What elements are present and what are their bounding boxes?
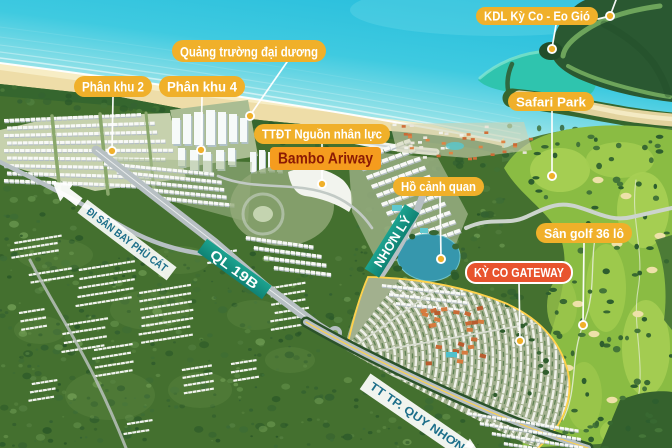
svg-text:Phân khu 2: Phân khu 2 <box>82 80 144 95</box>
svg-text:Safari Park: Safari Park <box>516 95 587 110</box>
svg-text:KDL Kỳ Co - Eo Gió: KDL Kỳ Co - Eo Gió <box>484 10 590 24</box>
svg-text:Phân khu 4: Phân khu 4 <box>167 80 237 95</box>
svg-text:Hồ cảnh quan: Hồ cảnh quan <box>401 180 476 194</box>
svg-text:KỲ CO GATEWAY: KỲ CO GATEWAY <box>474 265 565 280</box>
svg-text:Quảng trường đại dương: Quảng trường đại dương <box>180 44 318 60</box>
svg-text:Sân golf 36 lô: Sân golf 36 lô <box>544 226 624 241</box>
svg-text:TTĐT Nguồn nhân lực: TTĐT Nguồn nhân lực <box>262 128 382 142</box>
svg-text:Bambo Ariway: Bambo Ariway <box>278 151 373 168</box>
